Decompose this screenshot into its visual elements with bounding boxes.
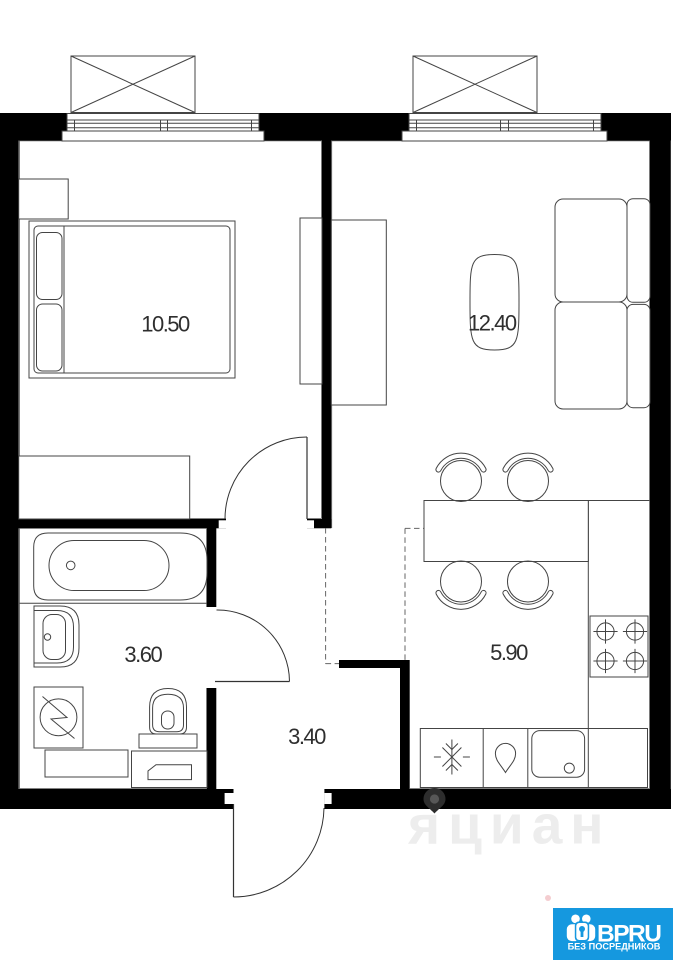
svg-text:яциан: яциан <box>407 794 612 856</box>
svg-text:10.50: 10.50 <box>141 311 190 336</box>
svg-text:БЕЗ ПОСРЕДНИКОВ: БЕЗ ПОСРЕДНИКОВ <box>568 942 661 952</box>
svg-text:12.40: 12.40 <box>468 311 517 336</box>
svg-text:3.40: 3.40 <box>288 724 326 749</box>
svg-text:3.60: 3.60 <box>124 642 162 667</box>
svg-text:5.90: 5.90 <box>490 640 528 665</box>
